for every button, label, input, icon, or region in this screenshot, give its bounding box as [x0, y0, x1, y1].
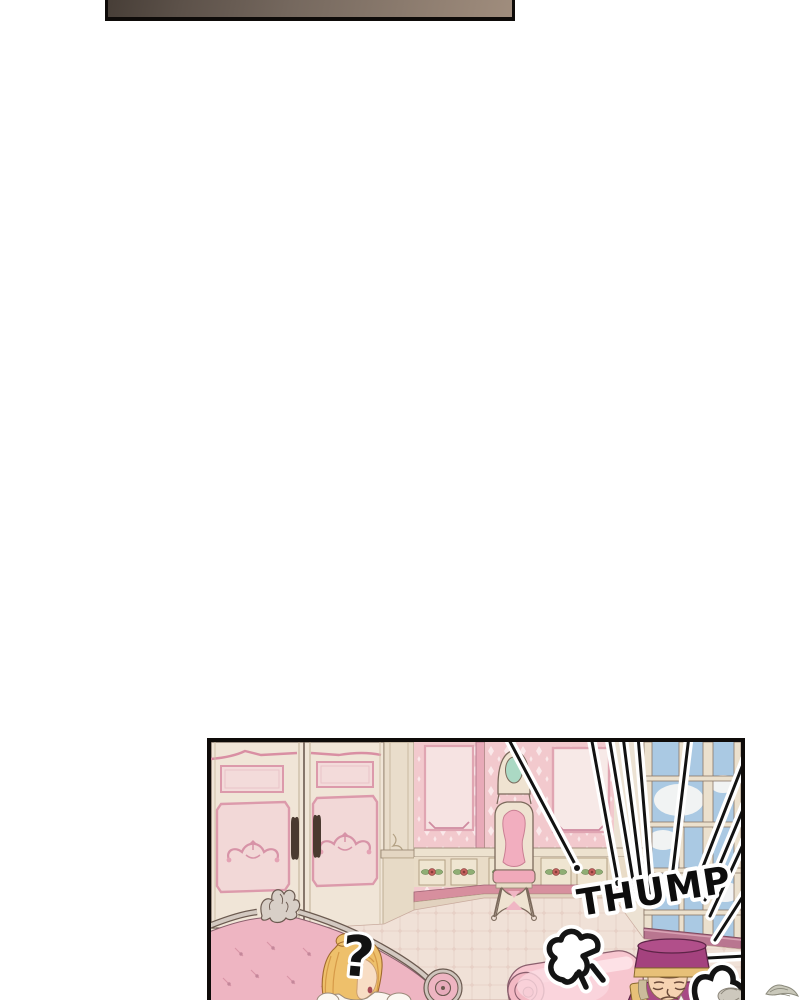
question-mark-sfx: ? [339, 924, 377, 992]
outside-ornament [764, 976, 800, 1000]
panel-top-strip [105, 0, 515, 21]
panel-scene: ? [207, 738, 745, 1000]
left-pilaster [381, 742, 417, 938]
wardrobe-handle-right [313, 815, 321, 858]
wardrobe-handle-left [291, 817, 299, 860]
page-background: ? [0, 0, 800, 1000]
wall-inset-panel-left [425, 746, 473, 830]
attendant-cap [634, 939, 710, 977]
scene-artwork: ? [211, 742, 741, 1000]
couch-armrest [424, 969, 462, 1000]
